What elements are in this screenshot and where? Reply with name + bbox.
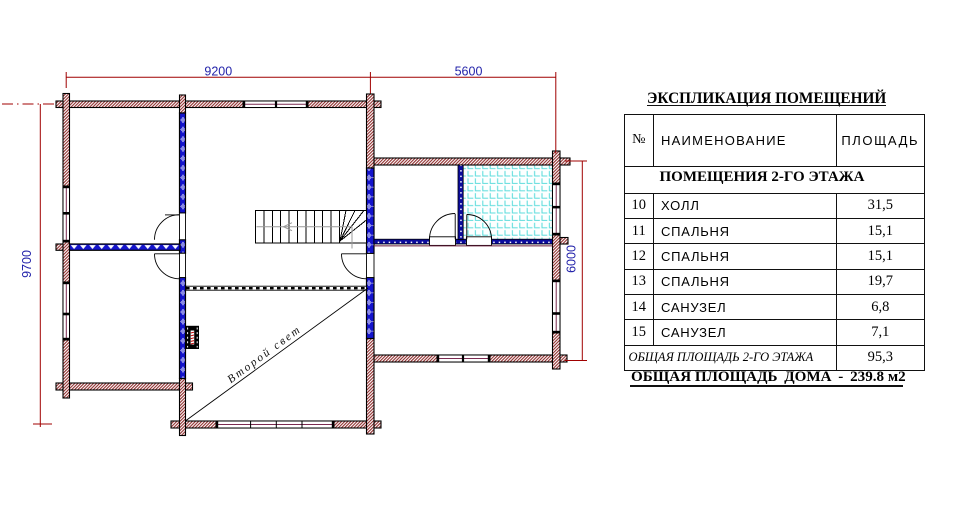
svg-text:5600: 5600 bbox=[455, 65, 483, 79]
svg-text:9200: 9200 bbox=[204, 65, 232, 79]
svg-text:9700: 9700 bbox=[20, 250, 34, 278]
svg-text:6000: 6000 bbox=[565, 245, 579, 273]
svg-text:Второй свет: Второй свет bbox=[225, 323, 304, 386]
